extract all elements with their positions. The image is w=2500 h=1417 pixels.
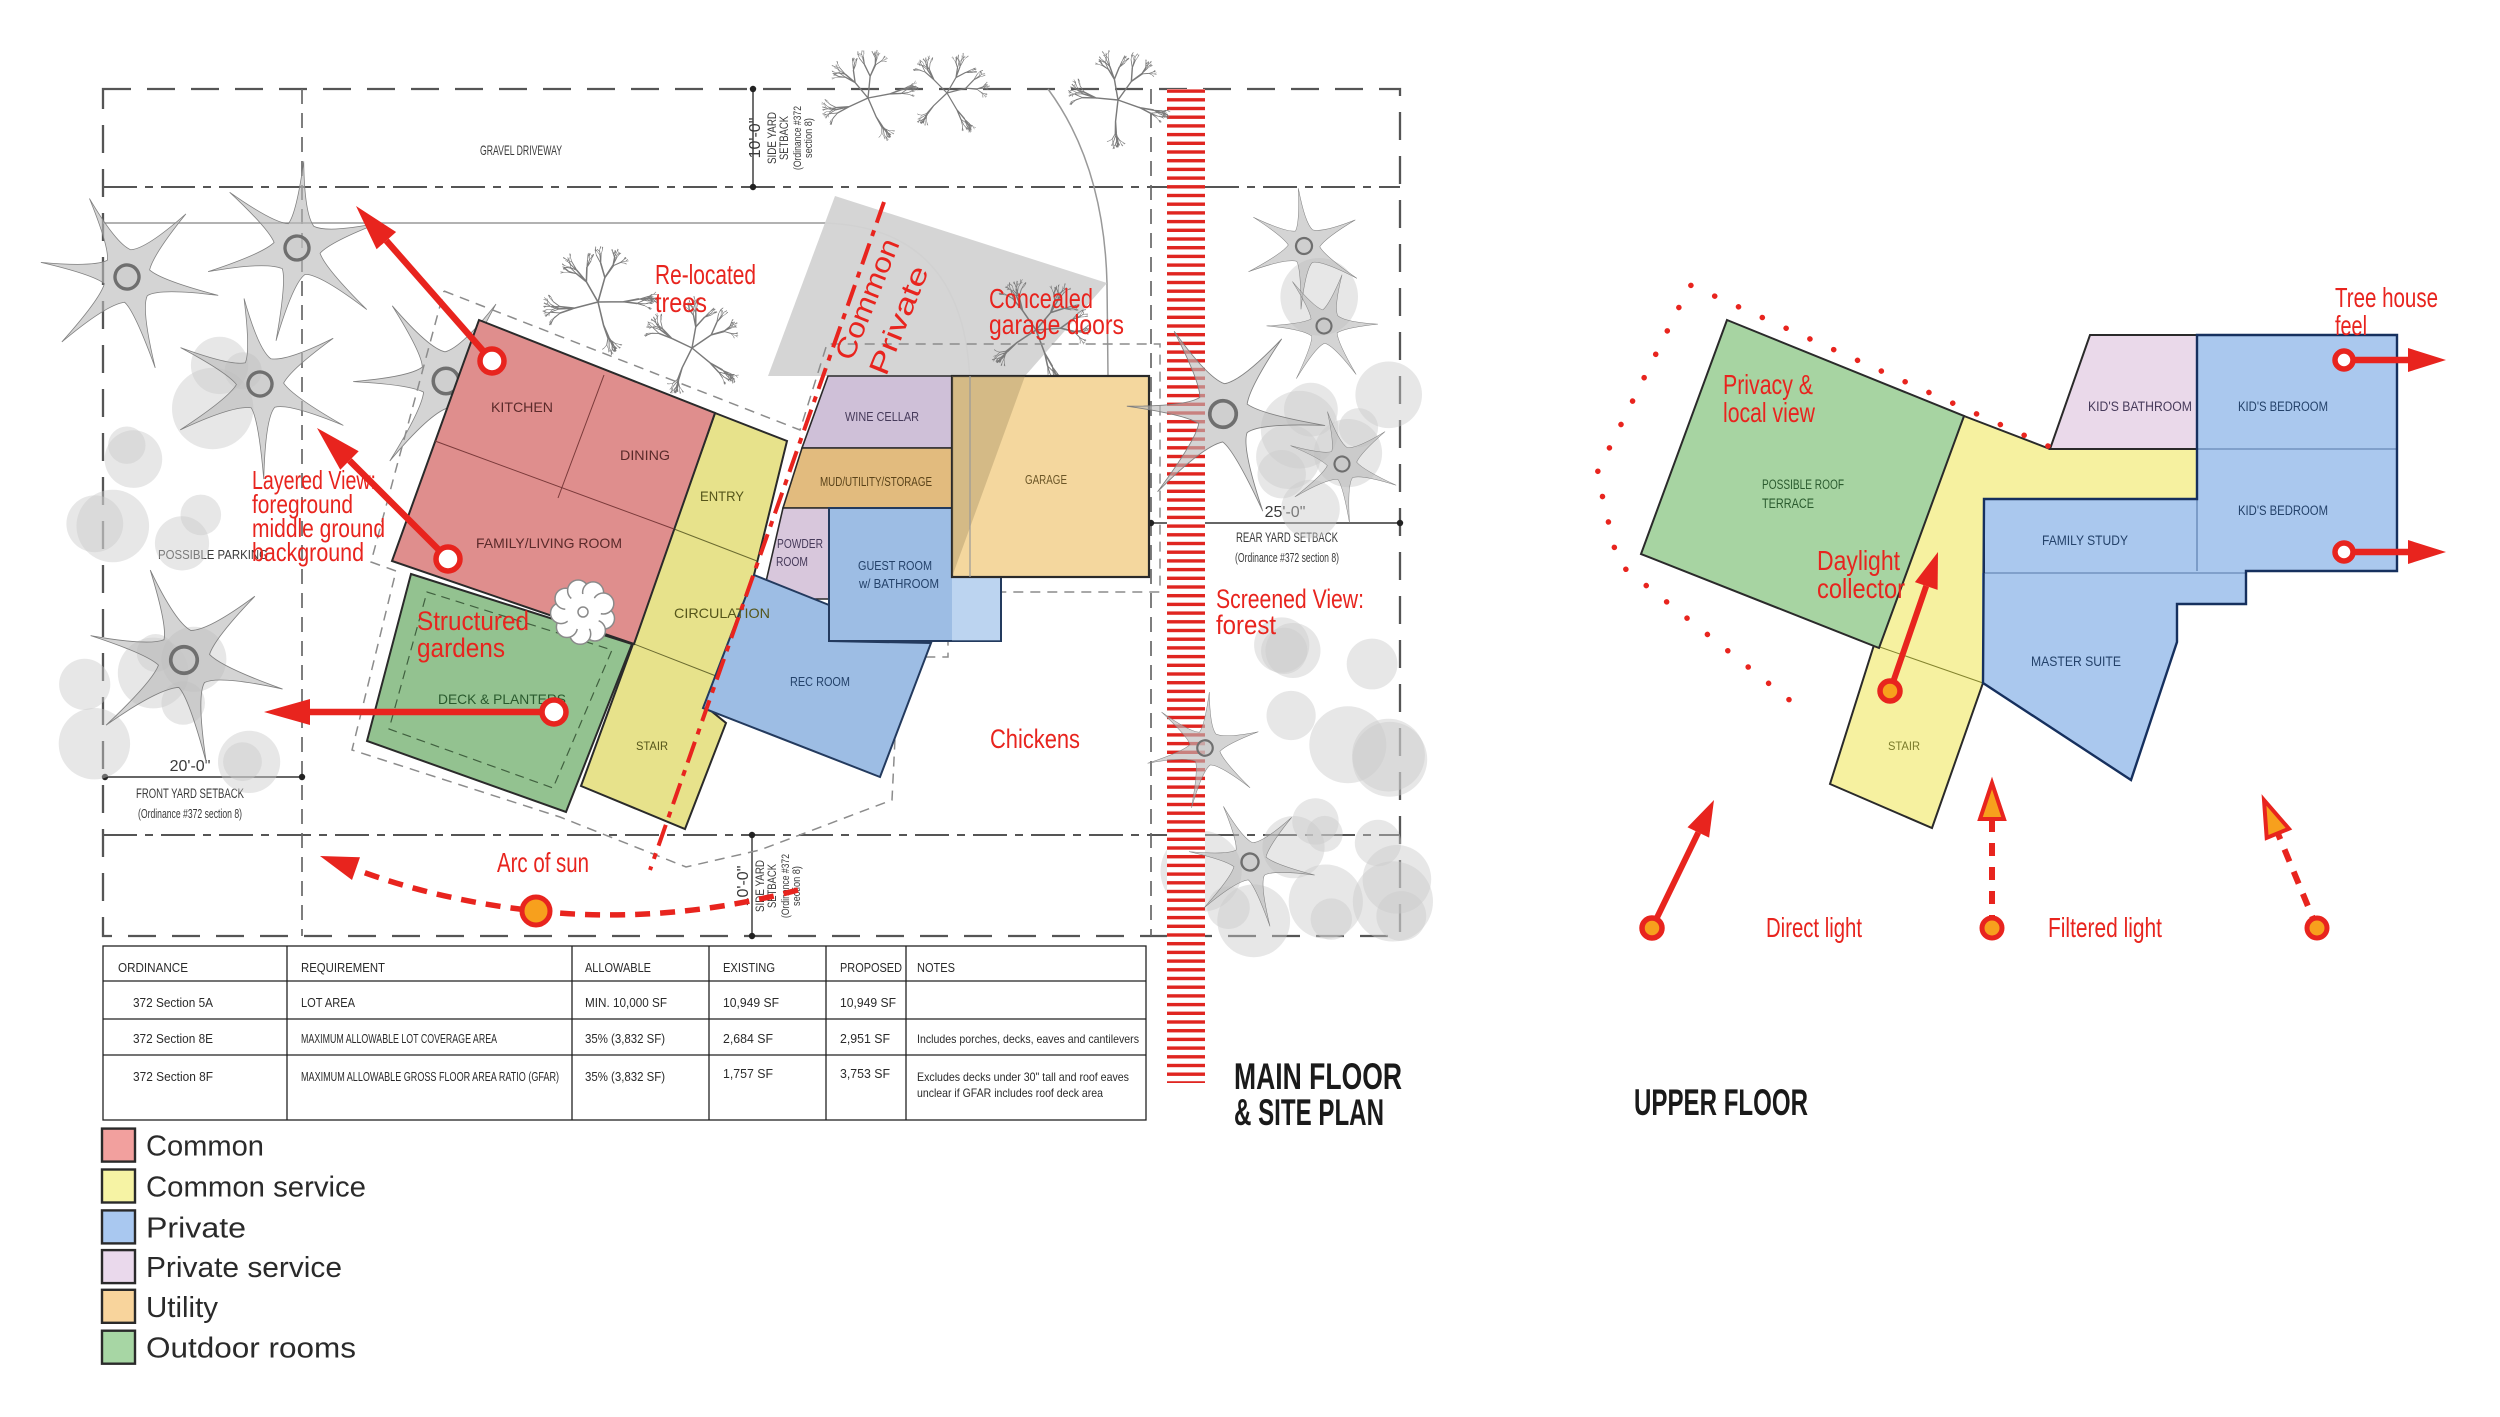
svg-text:Excludes decks under 30" tall: Excludes decks under 30" tall and roof e… bbox=[917, 1070, 1129, 1084]
svg-text:CIRCULATION: CIRCULATION bbox=[674, 605, 770, 621]
svg-text:10,949 SF: 10,949 SF bbox=[840, 995, 896, 1010]
svg-text:Private: Private bbox=[146, 1212, 246, 1244]
svg-text:KID'S BEDROOM: KID'S BEDROOM bbox=[2238, 503, 2328, 518]
svg-text:(Ordinance #372 section 8): (Ordinance #372 section 8) bbox=[1235, 551, 1339, 565]
svg-text:TERRACE: TERRACE bbox=[1762, 496, 1814, 511]
svg-text:gardens: gardens bbox=[417, 633, 505, 663]
svg-text:SETBACK: SETBACK bbox=[777, 116, 791, 160]
svg-text:2,684 SF: 2,684 SF bbox=[723, 1031, 773, 1046]
svg-text:WINE CELLAR: WINE CELLAR bbox=[845, 409, 919, 424]
svg-text:MAIN FLOOR: MAIN FLOOR bbox=[1234, 1056, 1402, 1097]
svg-text:collector: collector bbox=[1817, 573, 1905, 604]
svg-text:local view: local view bbox=[1723, 397, 1816, 428]
svg-text:(Ordinance #372 section 8): (Ordinance #372 section 8) bbox=[138, 807, 242, 821]
svg-text:MASTER SUITE: MASTER SUITE bbox=[2031, 654, 2121, 669]
svg-text:POSSIBLE ROOF: POSSIBLE ROOF bbox=[1762, 477, 1844, 492]
svg-text:background: background bbox=[252, 537, 364, 567]
svg-text:FAMILY STUDY: FAMILY STUDY bbox=[2042, 533, 2128, 548]
svg-text:STAIR: STAIR bbox=[636, 739, 668, 753]
svg-text:DINING: DINING bbox=[620, 447, 670, 463]
svg-text:ALLOWABLE: ALLOWABLE bbox=[585, 960, 651, 975]
svg-text:POWDER: POWDER bbox=[777, 537, 823, 551]
svg-text:GARAGE: GARAGE bbox=[1025, 473, 1067, 487]
svg-text:35% (3,832 SF): 35% (3,832 SF) bbox=[585, 1031, 665, 1046]
svg-text:Privacy &: Privacy & bbox=[1723, 369, 1813, 400]
svg-text:KID'S BATHROOM: KID'S BATHROOM bbox=[2088, 399, 2192, 414]
svg-text:SETBACK: SETBACK bbox=[765, 864, 779, 908]
svg-text:ROOM: ROOM bbox=[776, 555, 808, 569]
svg-text:Private service: Private service bbox=[146, 1252, 342, 1284]
svg-text:FRONT YARD SETBACK: FRONT YARD SETBACK bbox=[136, 786, 244, 801]
svg-text:MIN. 10,000 SF: MIN. 10,000 SF bbox=[585, 995, 667, 1010]
svg-text:Includes porches, decks, eaves: Includes porches, decks, eaves and canti… bbox=[917, 1032, 1139, 1046]
svg-text:ENTRY: ENTRY bbox=[700, 488, 745, 504]
svg-text:REQUIREMENT: REQUIREMENT bbox=[301, 960, 385, 975]
svg-text:Filtered light: Filtered light bbox=[2048, 912, 2162, 943]
svg-text:trees: trees bbox=[655, 287, 707, 318]
svg-text:2,951 SF: 2,951 SF bbox=[840, 1031, 890, 1046]
svg-text:GUEST ROOM: GUEST ROOM bbox=[858, 558, 932, 573]
svg-text:20'-0": 20'-0" bbox=[170, 758, 211, 775]
svg-text:1,757 SF: 1,757 SF bbox=[723, 1066, 773, 1081]
svg-text:Outdoor rooms: Outdoor rooms bbox=[146, 1333, 356, 1365]
svg-text:Structured: Structured bbox=[417, 606, 529, 636]
svg-text:MUD/UTILITY/STORAGE: MUD/UTILITY/STORAGE bbox=[820, 475, 932, 489]
svg-text:FAMILY/LIVING ROOM: FAMILY/LIVING ROOM bbox=[476, 535, 622, 551]
svg-text:LOT AREA: LOT AREA bbox=[301, 995, 355, 1010]
svg-text:feel: feel bbox=[2335, 310, 2367, 341]
svg-text:Tree house: Tree house bbox=[2335, 282, 2438, 313]
svg-text:forest: forest bbox=[1216, 610, 1276, 640]
svg-text:Utility: Utility bbox=[146, 1292, 219, 1324]
svg-text:& SITE PLAN: & SITE PLAN bbox=[1234, 1092, 1384, 1133]
svg-text:Arc of sun: Arc of sun bbox=[497, 847, 589, 878]
svg-text:STAIR: STAIR bbox=[1888, 739, 1920, 753]
svg-text:REC ROOM: REC ROOM bbox=[790, 674, 850, 689]
svg-text:UPPER FLOOR: UPPER FLOOR bbox=[1634, 1082, 1808, 1123]
svg-text:GRAVEL DRIVEWAY: GRAVEL DRIVEWAY bbox=[480, 142, 562, 158]
svg-text:10,949 SF: 10,949 SF bbox=[723, 995, 779, 1010]
svg-text:NOTES: NOTES bbox=[917, 960, 955, 975]
svg-text:10'-0": 10'-0" bbox=[747, 118, 764, 159]
svg-text:section 8): section 8) bbox=[791, 866, 803, 906]
svg-text:KID'S BEDROOM: KID'S BEDROOM bbox=[2238, 399, 2328, 414]
svg-text:unclear if GFAR includes roof: unclear if GFAR includes roof deck area bbox=[917, 1086, 1103, 1100]
svg-text:ORDINANCE: ORDINANCE bbox=[118, 960, 188, 975]
svg-text:Re-located: Re-located bbox=[655, 259, 756, 290]
svg-text:Common: Common bbox=[146, 1131, 264, 1163]
svg-text:KITCHEN: KITCHEN bbox=[491, 399, 553, 415]
svg-text:35% (3,832 SF): 35% (3,832 SF) bbox=[585, 1069, 665, 1084]
svg-text:garage doors: garage doors bbox=[989, 309, 1124, 340]
svg-text:3,753 SF: 3,753 SF bbox=[840, 1066, 890, 1081]
svg-text:Common service: Common service bbox=[146, 1172, 366, 1204]
svg-text:EXISTING: EXISTING bbox=[723, 960, 775, 975]
svg-text:MAXIMUM ALLOWABLE LOT COVERAGE: MAXIMUM ALLOWABLE LOT COVERAGE AREA bbox=[301, 1031, 497, 1046]
svg-text:372 Section 8F: 372 Section 8F bbox=[133, 1069, 213, 1084]
svg-text:section 8): section 8) bbox=[803, 118, 815, 158]
svg-text:372 Section 8E: 372 Section 8E bbox=[133, 1031, 213, 1046]
svg-text:Daylight: Daylight bbox=[1817, 545, 1900, 576]
svg-text:MAXIMUM ALLOWABLE GROSS FLOOR: MAXIMUM ALLOWABLE GROSS FLOOR AREA RATIO… bbox=[301, 1069, 559, 1084]
svg-text:Chickens: Chickens bbox=[990, 724, 1080, 754]
svg-text:372 Section 5A: 372 Section 5A bbox=[133, 995, 213, 1010]
svg-text:PROPOSED: PROPOSED bbox=[840, 960, 902, 975]
svg-text:w/ BATHROOM: w/ BATHROOM bbox=[858, 576, 939, 591]
svg-text:Direct light: Direct light bbox=[1766, 912, 1862, 943]
